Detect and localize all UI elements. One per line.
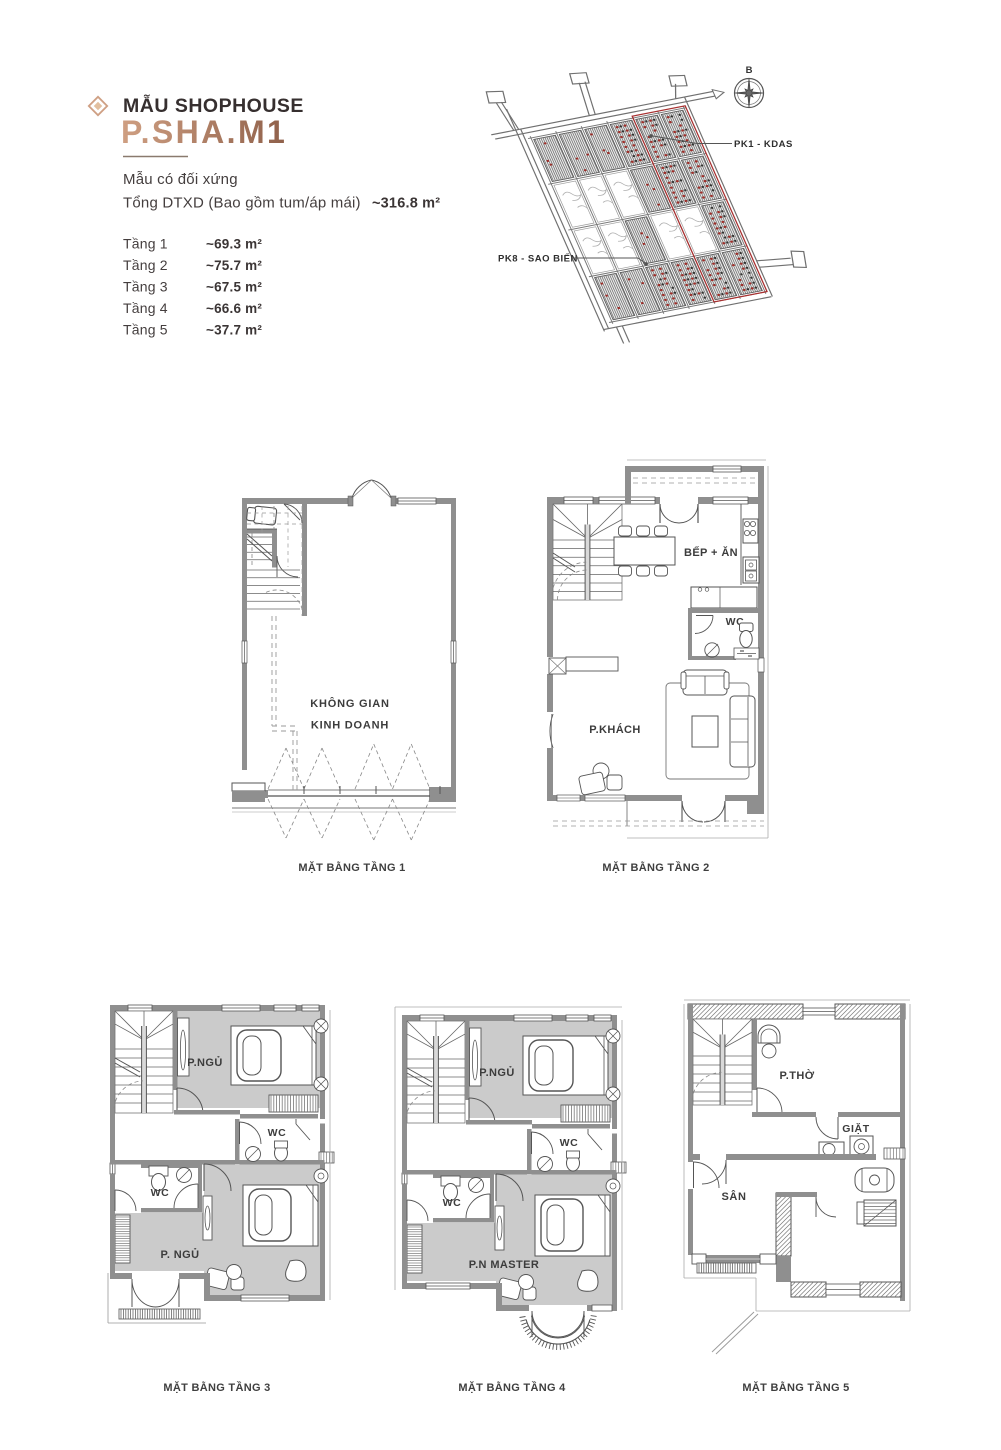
svg-text:WC: WC xyxy=(443,1197,462,1209)
svg-text:Tầng 1: Tầng 1 xyxy=(123,236,168,252)
svg-text:MẶT BẰNG TẦNG 4: MẶT BẰNG TẦNG 4 xyxy=(458,1381,566,1394)
svg-text:MẶT BẰNG TẦNG 1: MẶT BẰNG TẦNG 1 xyxy=(298,861,405,874)
svg-text:~69.3 m²: ~69.3 m² xyxy=(206,237,262,252)
svg-text:~37.7 m²: ~37.7 m² xyxy=(206,323,262,338)
svg-text:PK1 - KDAS: PK1 - KDAS xyxy=(734,139,793,150)
svg-text:PK8 - SAO BIỂN: PK8 - SAO BIỂN xyxy=(498,253,578,265)
svg-text:WC: WC xyxy=(560,1137,579,1149)
svg-text:P.NGỦ: P.NGỦ xyxy=(479,1066,514,1079)
svg-text:KHÔNG GIAN: KHÔNG GIAN xyxy=(310,697,390,710)
svg-text:~316.8 m²: ~316.8 m² xyxy=(372,196,440,212)
svg-text:MẶT BẰNG TẦNG 5: MẶT BẰNG TẦNG 5 xyxy=(742,1381,849,1394)
svg-text:P. NGỦ: P. NGỦ xyxy=(161,1248,200,1261)
svg-text:B: B xyxy=(746,65,753,76)
svg-text:GIẶT: GIẶT xyxy=(842,1122,869,1135)
svg-text:P.SHA.M1: P.SHA.M1 xyxy=(121,114,287,150)
svg-text:P.THỜ: P.THỜ xyxy=(779,1069,814,1082)
svg-text:WC: WC xyxy=(268,1127,287,1139)
svg-text:Tổng DTXD (Bao gồm tum/áp mái): Tổng DTXD (Bao gồm tum/áp mái) xyxy=(123,195,361,212)
svg-text:~75.7 m²: ~75.7 m² xyxy=(206,258,262,273)
svg-text:Tầng 5: Tầng 5 xyxy=(123,322,168,338)
svg-text:MẶT BẰNG TẦNG 3: MẶT BẰNG TẦNG 3 xyxy=(163,1381,270,1394)
svg-text:SÂN: SÂN xyxy=(721,1190,746,1203)
svg-text:P.KHÁCH: P.KHÁCH xyxy=(589,723,641,736)
svg-text:Tầng 2: Tầng 2 xyxy=(123,257,168,273)
svg-text:WC: WC xyxy=(151,1187,170,1199)
svg-text:KINH DOANH: KINH DOANH xyxy=(311,720,389,732)
svg-text:Tầng 4: Tầng 4 xyxy=(123,300,168,316)
svg-text:P.NGỦ: P.NGỦ xyxy=(187,1056,222,1069)
svg-text:Tầng 3: Tầng 3 xyxy=(123,279,168,295)
svg-text:~67.5 m²: ~67.5 m² xyxy=(206,280,262,295)
svg-text:~66.6 m²: ~66.6 m² xyxy=(206,301,262,316)
svg-text:BẾP + ĂN: BẾP + ĂN xyxy=(684,546,738,559)
svg-text:P.N MASTER: P.N MASTER xyxy=(469,1259,539,1271)
svg-text:Mẫu có đối xứng: Mẫu có đối xứng xyxy=(123,171,238,188)
svg-text:MẶT BẰNG TẦNG 2: MẶT BẰNG TẦNG 2 xyxy=(602,861,709,874)
